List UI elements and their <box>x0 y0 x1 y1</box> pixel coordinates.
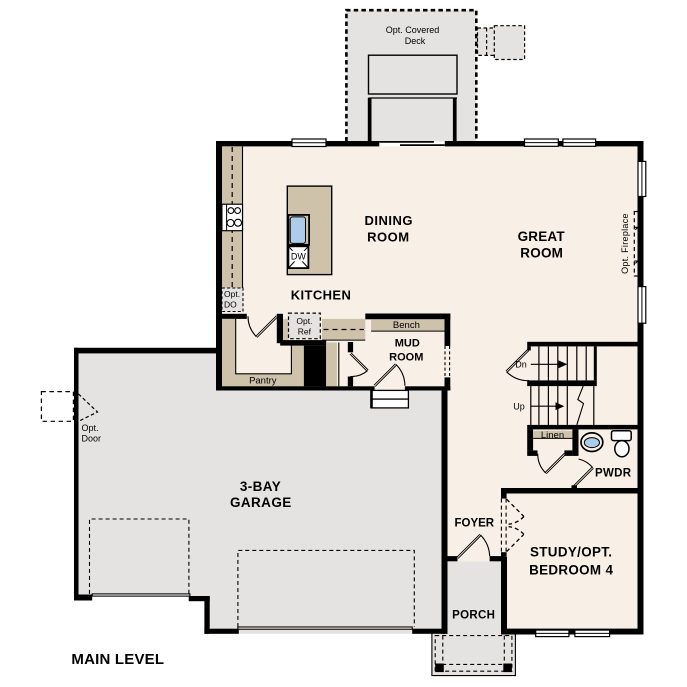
svg-text:MUD: MUD <box>395 337 420 349</box>
svg-text:Linen: Linen <box>541 430 564 441</box>
svg-text:ROOM: ROOM <box>520 246 563 261</box>
svg-text:GREAT: GREAT <box>518 229 566 244</box>
svg-text:Dn: Dn <box>515 359 527 369</box>
svg-text:DW: DW <box>291 252 306 262</box>
svg-text:Opt.: Opt. <box>296 316 312 326</box>
svg-text:Pantry: Pantry <box>249 375 277 386</box>
svg-text:Up: Up <box>513 401 525 411</box>
svg-text:PWDR: PWDR <box>595 468 632 480</box>
svg-text:Deck: Deck <box>405 36 426 46</box>
svg-text:Opt.: Opt. <box>224 289 240 299</box>
svg-text:DO: DO <box>224 299 237 309</box>
svg-text:GARAGE: GARAGE <box>230 495 292 510</box>
svg-text:FOYER: FOYER <box>454 518 494 530</box>
svg-text:STUDY/OPT.: STUDY/OPT. <box>530 544 612 559</box>
svg-text:Opt. Covered: Opt. Covered <box>386 25 440 35</box>
svg-text:MAIN LEVEL: MAIN LEVEL <box>71 651 164 668</box>
svg-text:ROOM: ROOM <box>367 230 409 245</box>
svg-text:Bench: Bench <box>393 320 420 331</box>
svg-text:DINING: DINING <box>364 213 413 228</box>
svg-text:Door: Door <box>82 433 102 443</box>
svg-text:KITCHEN: KITCHEN <box>291 288 352 303</box>
svg-text:Opt.: Opt. <box>82 423 99 433</box>
svg-text:Opt. Fireplace: Opt. Fireplace <box>620 213 630 274</box>
svg-text:ROOM: ROOM <box>389 351 423 363</box>
svg-text:3-BAY: 3-BAY <box>240 479 281 494</box>
svg-text:Ref: Ref <box>298 327 312 337</box>
svg-text:PORCH: PORCH <box>452 609 495 621</box>
svg-text:BEDROOM 4: BEDROOM 4 <box>529 562 613 577</box>
